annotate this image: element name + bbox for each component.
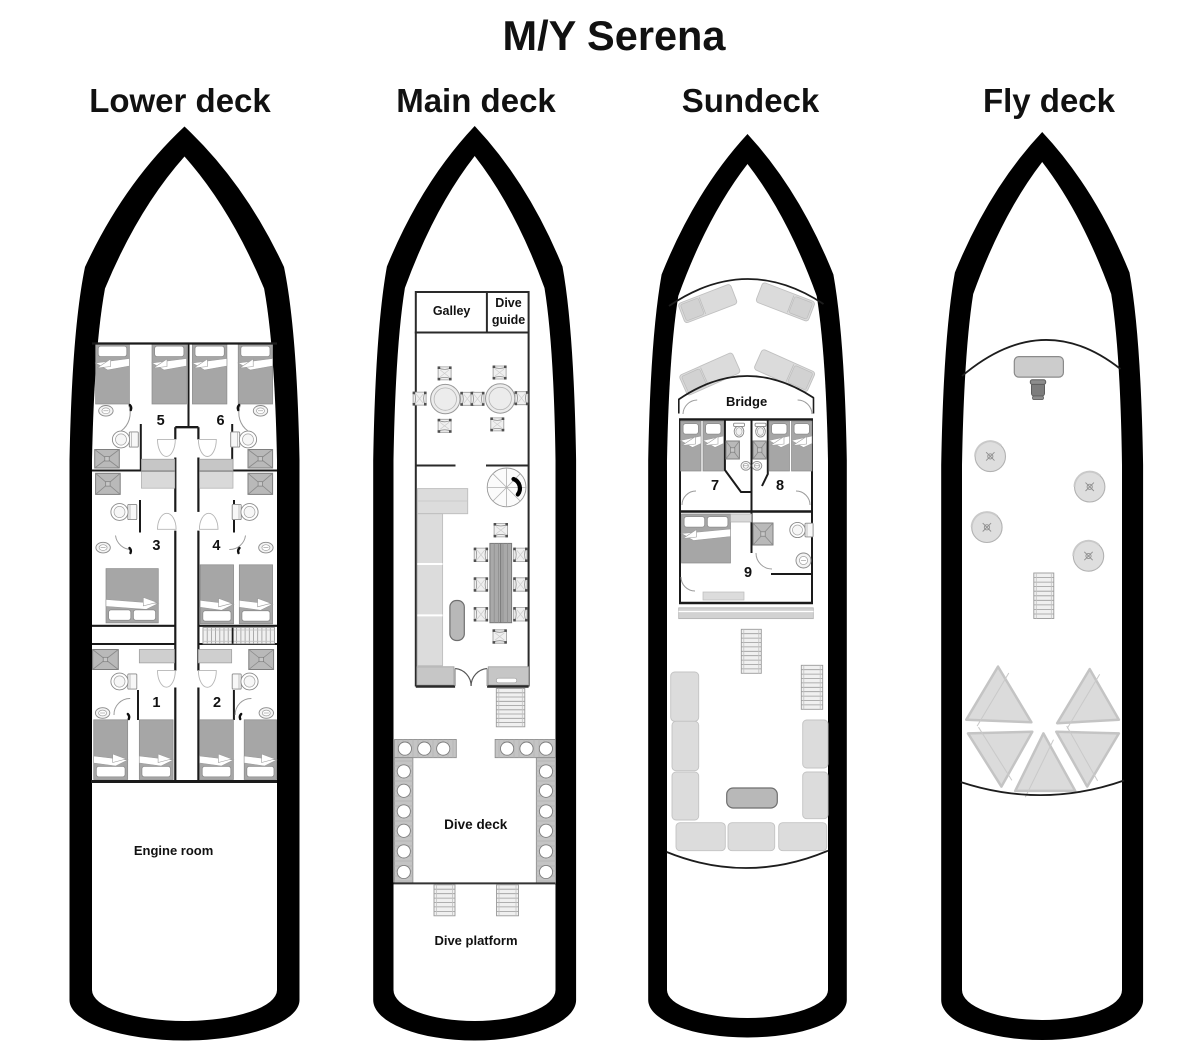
svg-text:M/Y Serena: M/Y Serena xyxy=(503,12,727,59)
svg-text:Engine room: Engine room xyxy=(134,843,213,858)
svg-text:Galley: Galley xyxy=(433,304,471,318)
svg-text:Main deck: Main deck xyxy=(396,82,556,119)
svg-text:Bridge: Bridge xyxy=(726,394,767,409)
svg-text:3: 3 xyxy=(152,538,160,554)
svg-text:1: 1 xyxy=(152,695,160,711)
svg-text:Fly deck: Fly deck xyxy=(983,82,1116,119)
svg-text:8: 8 xyxy=(776,478,784,494)
svg-text:Lower deck: Lower deck xyxy=(89,82,271,119)
svg-text:Dive platform: Dive platform xyxy=(434,933,517,948)
svg-text:6: 6 xyxy=(217,413,225,429)
svg-text:Sundeck: Sundeck xyxy=(682,82,820,119)
svg-text:9: 9 xyxy=(744,565,752,581)
svg-text:2: 2 xyxy=(213,695,221,711)
svg-text:4: 4 xyxy=(212,538,220,554)
svg-text:5: 5 xyxy=(157,413,165,429)
svg-text:guide: guide xyxy=(492,313,525,327)
svg-text:Dive: Dive xyxy=(495,296,521,310)
svg-text:Dive deck: Dive deck xyxy=(444,817,508,832)
svg-text:7: 7 xyxy=(711,478,719,494)
